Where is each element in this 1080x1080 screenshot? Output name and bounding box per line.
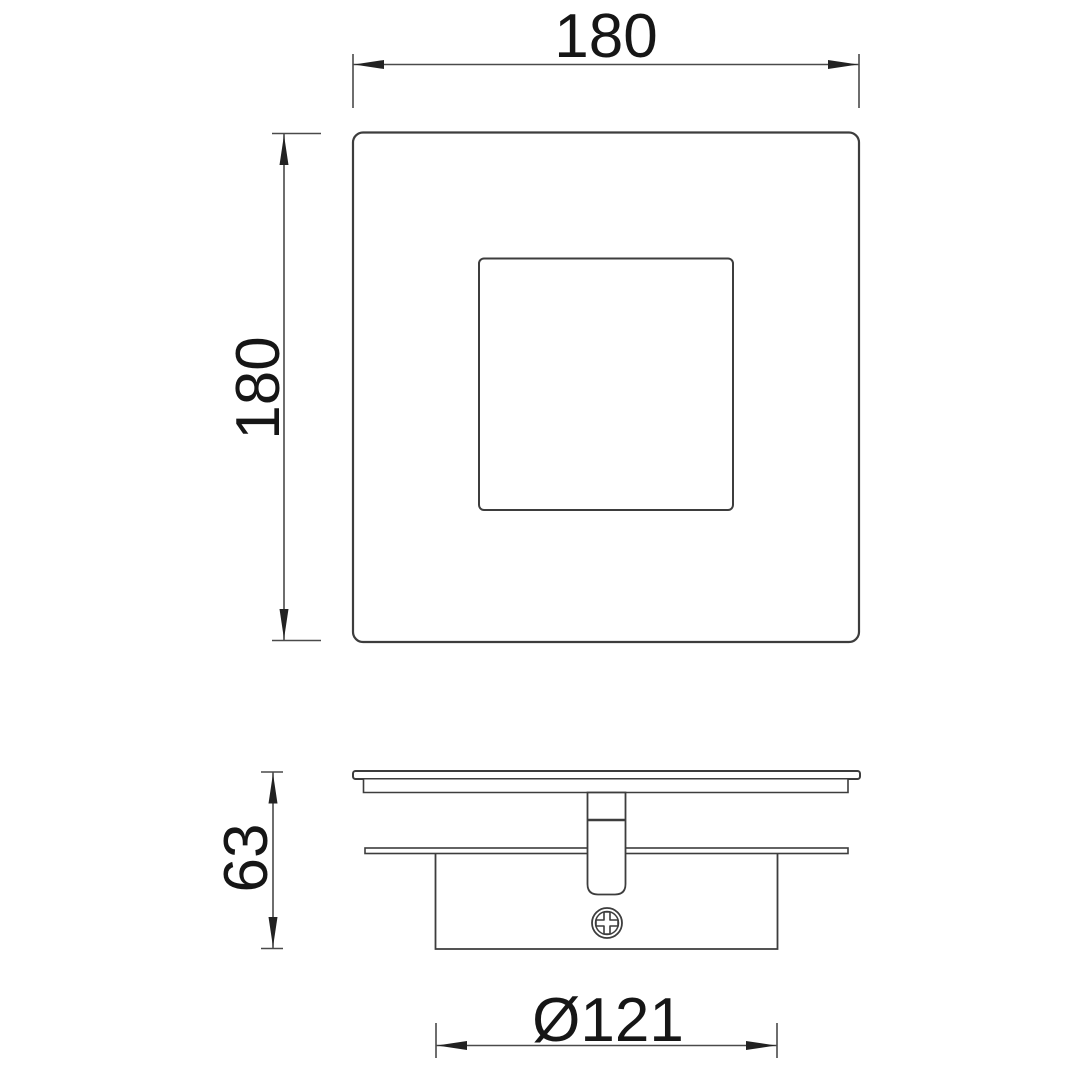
top-view xyxy=(353,133,859,643)
arrowhead-right-icon xyxy=(828,60,858,69)
arrowhead-left-icon xyxy=(354,60,384,69)
panel-profile-lip xyxy=(353,771,860,779)
arrowhead-right-icon xyxy=(746,1041,776,1050)
side-view xyxy=(353,771,860,949)
dimension-depth-label: 63 xyxy=(212,824,281,893)
dimension-drawing-canvas: 180 180 63 Ø121 xyxy=(0,0,1080,1080)
arrowhead-left-icon xyxy=(437,1041,467,1050)
dimension-diameter-label: Ø121 xyxy=(532,986,684,1055)
arrowhead-top-icon xyxy=(280,135,289,165)
arrowhead-bottom-icon xyxy=(280,609,289,639)
dimension-depth: 63 xyxy=(212,772,283,949)
arrowhead-bottom-icon xyxy=(269,917,278,947)
dimension-width: 180 xyxy=(353,2,859,108)
dimension-width-label: 180 xyxy=(554,2,657,71)
panel-profile-body xyxy=(364,780,849,793)
screw-icon xyxy=(592,908,622,938)
stem-profile xyxy=(588,793,626,895)
led-window-outline xyxy=(479,259,733,511)
technical-drawing: 180 180 63 Ø121 xyxy=(0,0,1080,1080)
dimension-diameter: Ø121 xyxy=(436,986,777,1058)
dimension-height-label: 180 xyxy=(224,336,293,439)
dimension-height: 180 xyxy=(224,134,321,641)
arrowhead-top-icon xyxy=(269,774,278,804)
